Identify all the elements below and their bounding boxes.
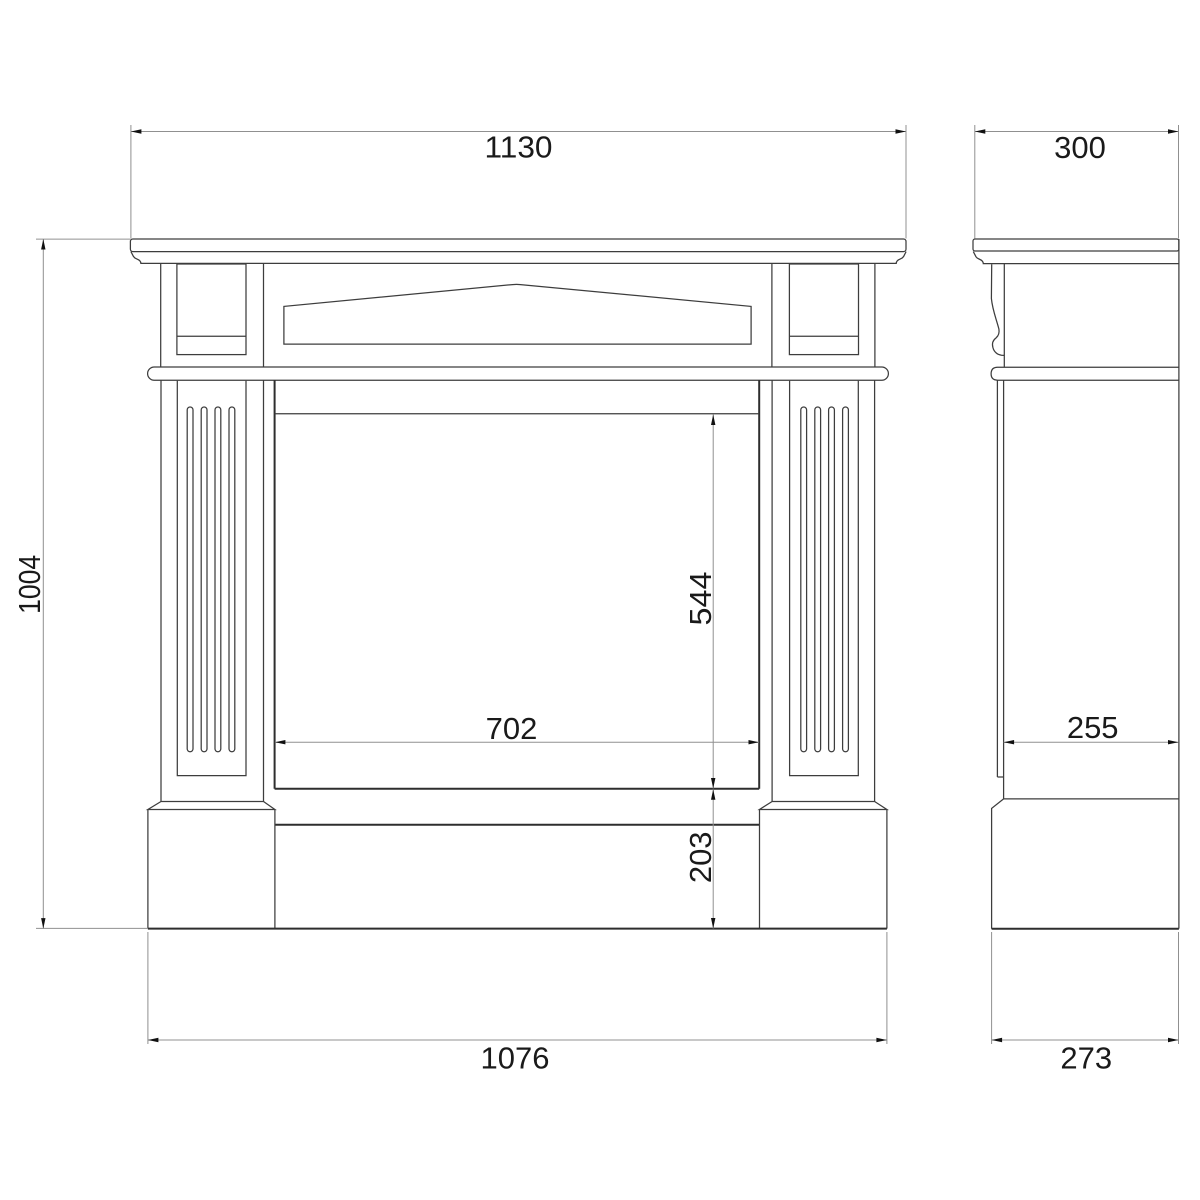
svg-text:300: 300 xyxy=(1054,130,1106,165)
svg-text:544: 544 xyxy=(683,572,718,626)
svg-text:203: 203 xyxy=(683,831,718,883)
svg-text:1130: 1130 xyxy=(485,130,553,165)
svg-text:273: 273 xyxy=(1060,1040,1112,1075)
svg-text:702: 702 xyxy=(486,711,538,746)
svg-text:255: 255 xyxy=(1067,710,1119,745)
svg-text:1076: 1076 xyxy=(481,1040,550,1075)
svg-text:1004: 1004 xyxy=(12,555,47,614)
